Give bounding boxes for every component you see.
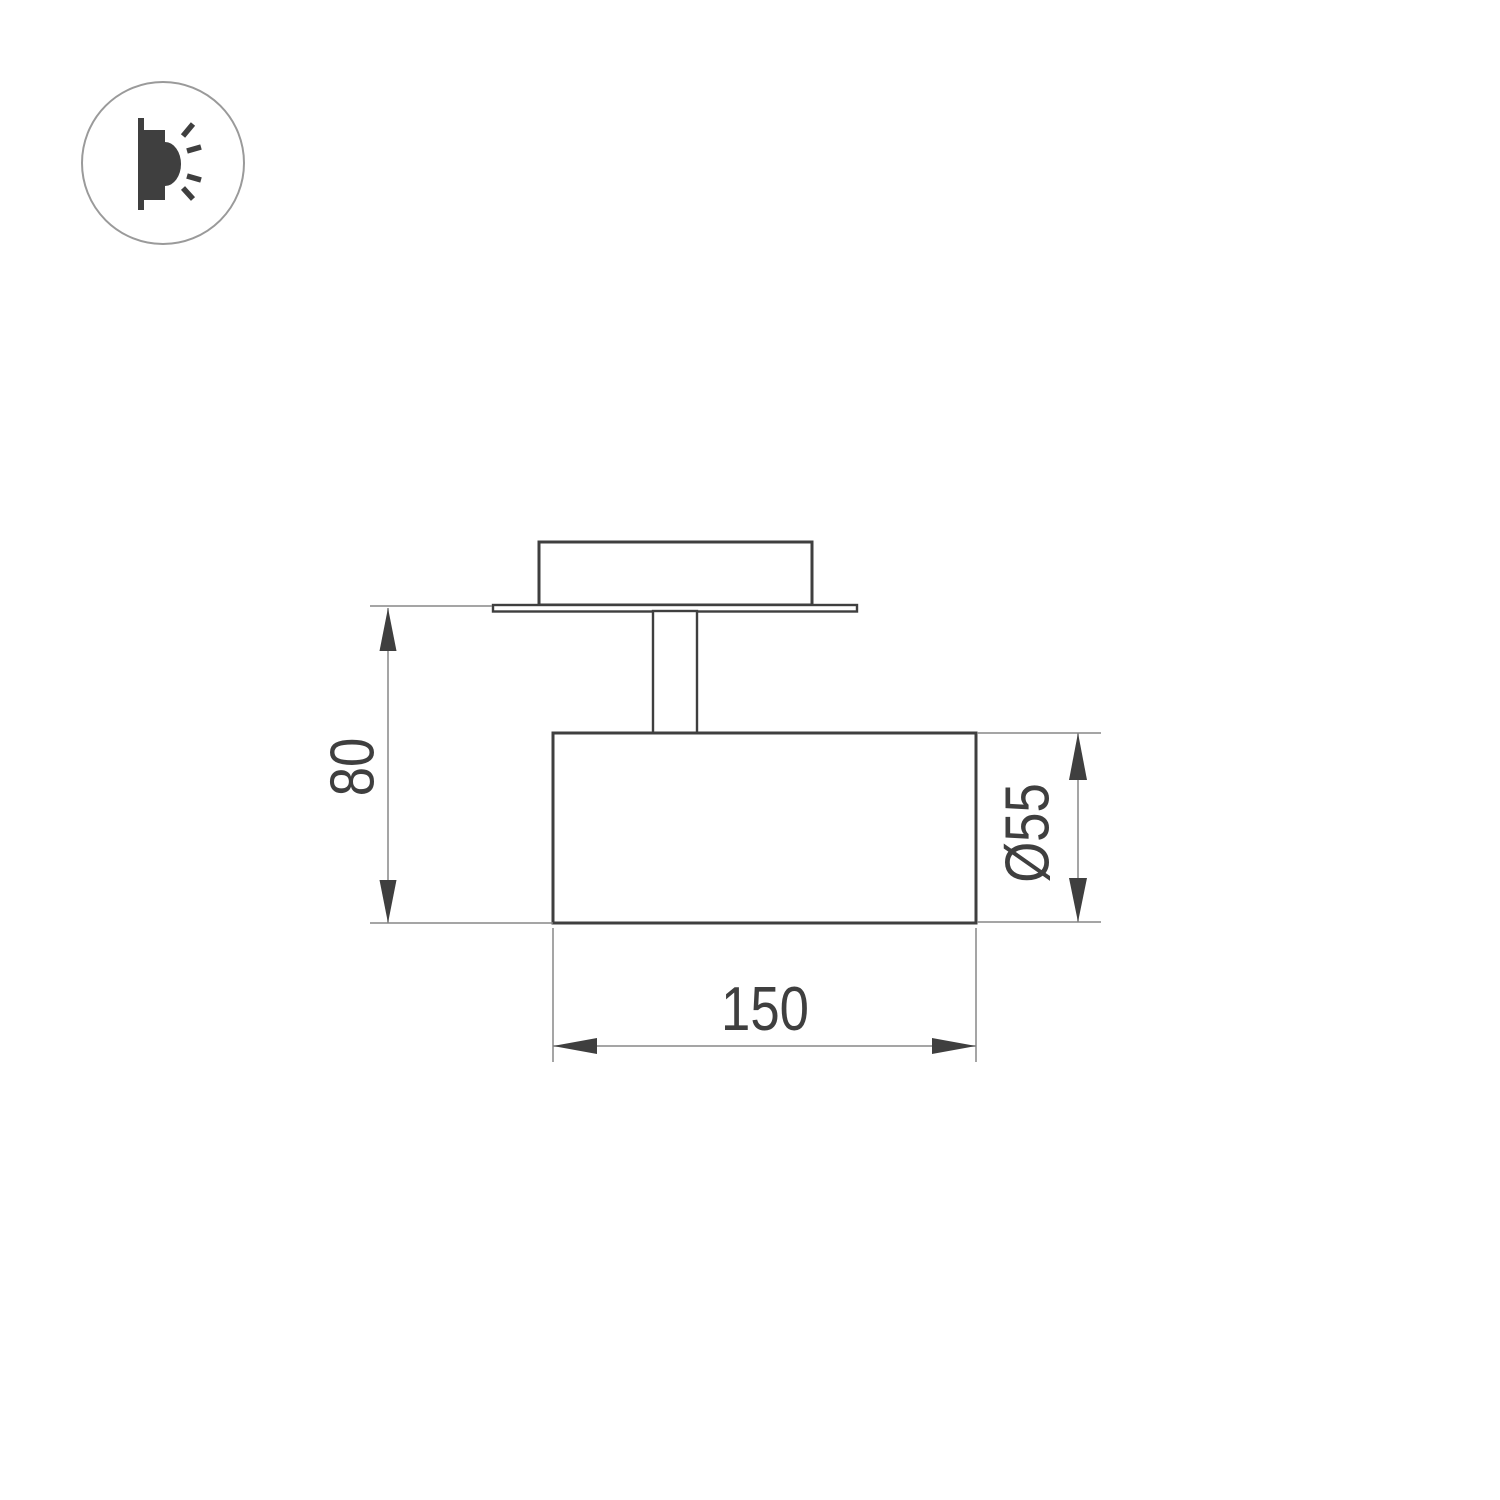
diameter-dimension-label: Ø55 (993, 783, 1062, 883)
height-dimension-label: 80 (318, 738, 387, 797)
wall-light-icon (82, 82, 244, 244)
lamp-body (553, 733, 976, 923)
icon-light-ray (183, 188, 193, 199)
icon-light-ray (187, 176, 201, 180)
fixture-drawing (493, 542, 976, 923)
icon-light-ray (187, 147, 201, 151)
arrowhead-down (380, 880, 397, 923)
arrowhead-right (932, 1038, 976, 1054)
stem (653, 611, 697, 733)
width-dimension-label: 150 (721, 975, 809, 1044)
arrowhead-up (380, 608, 397, 651)
mounting-box (539, 542, 812, 605)
icon-light-dome (165, 142, 181, 186)
arrowhead-left (553, 1038, 597, 1054)
arrowhead-down (1069, 878, 1087, 922)
icon-lamp-body (143, 130, 165, 200)
arrowhead-up (1069, 733, 1087, 780)
technical-drawing: 80 Ø55 150 (0, 0, 1500, 1500)
icon-light-ray (183, 124, 193, 136)
diameter-dimension: Ø55 (977, 733, 1101, 922)
drawing-canvas: 80 Ø55 150 (0, 0, 1500, 1500)
width-dimension: 150 (553, 928, 976, 1062)
height-dimension: 80 (318, 606, 553, 923)
